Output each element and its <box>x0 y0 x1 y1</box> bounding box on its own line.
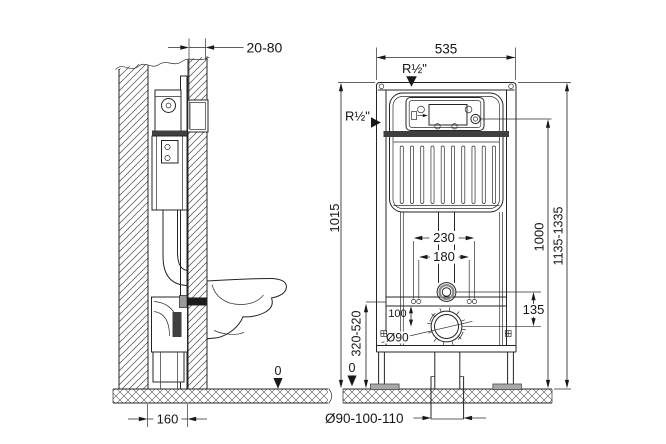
dim-outlet-range-label: 320-520 <box>350 311 364 357</box>
foot-plate <box>493 384 522 390</box>
dim-frame-depth-label: 160 <box>157 412 179 427</box>
dim-drain-sizes-label: Ø90-100-110 <box>325 411 404 426</box>
water-connection-top-label: R½" <box>402 61 427 76</box>
dim-outlet-offset-label: 100 <box>388 308 406 320</box>
floor-front <box>343 389 552 403</box>
dim-fixing-180-label: 180 <box>433 249 455 264</box>
label-outlet-diameter: Ø90 <box>386 331 409 345</box>
dim-wall-clearance-label: 20-80 <box>247 40 283 56</box>
dim-flush-to-outlet-label: 135 <box>523 302 545 317</box>
dim-flush-plate-height-label: 1000 <box>532 223 547 252</box>
technical-drawing: 20-80 160 0 <box>0 0 666 444</box>
water-connection-side-label: R½" <box>345 109 370 124</box>
floor-side <box>113 389 332 404</box>
rear-wall-hatch <box>119 56 148 389</box>
floor-level-label-front: 0 <box>349 361 356 375</box>
dim-frame-width-label: 535 <box>435 42 458 57</box>
dim-installation-height-label: 1135-1335 <box>552 207 566 266</box>
dim-fixing-230-label: 230 <box>433 230 455 245</box>
foot-plate <box>371 384 400 390</box>
flush-access-box-side <box>188 100 209 132</box>
dim-frame-height-label: 1015 <box>327 204 342 233</box>
mounting-band <box>384 131 510 137</box>
drawing-page: 20-80 160 0 <box>0 0 666 444</box>
outlet-unit-side <box>152 297 188 389</box>
floor-level-label-side: 0 <box>275 364 282 378</box>
